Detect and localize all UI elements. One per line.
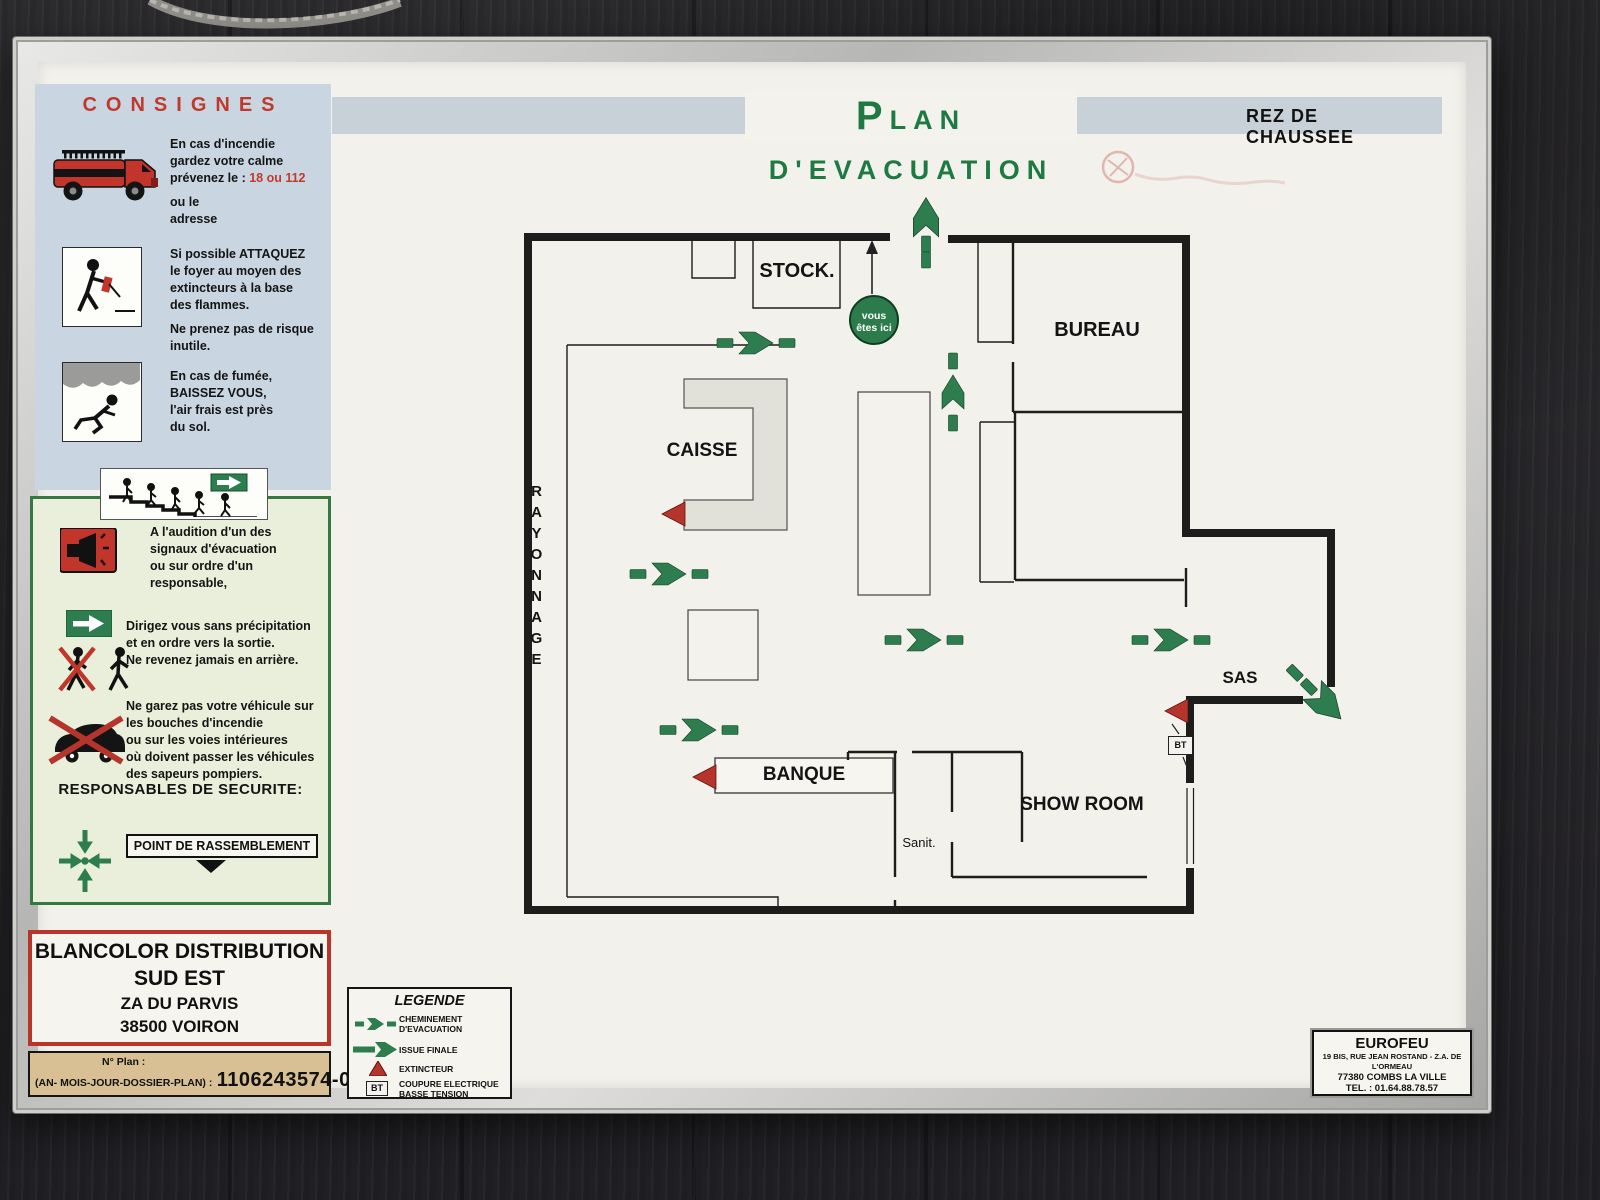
legend-box: LEGENDE CHEMINEMENT D'EVACUATION ISSUE F… — [347, 987, 512, 1099]
attack-instruction-text: Si possible ATTAQUEZ le foyer au moyen d… — [170, 246, 305, 314]
extinguisher-person-icon — [63, 248, 140, 325]
attack-instruction-text2: Ne prenez pas de risque inutile. — [170, 321, 314, 355]
extinguisher-pictogram — [62, 247, 142, 327]
evacuation-stairs-icon — [101, 469, 265, 517]
extinguisher-triangle-icon — [369, 1061, 387, 1076]
company-name-line1: BLANCOLOR DISTRIBUTION — [35, 938, 324, 965]
supplier-phone: TEL. : 01.64.88.78.57 — [1314, 1083, 1470, 1094]
final-exit-arrow — [1280, 658, 1350, 728]
supplier-box: EUROFEU 19 BIS, RUE JEAN ROSTAND - Z.A. … — [1312, 1030, 1472, 1096]
emergency-numbers: 18 ou 112 — [249, 171, 305, 185]
plan-number-label: N° Plan : — [102, 1056, 145, 1068]
smoke-crouch-icon — [63, 363, 140, 440]
solid-exit-arrow-icon — [353, 1042, 399, 1057]
bt-plan-marker: BT — [1168, 736, 1193, 755]
dashed-route-arrow-icon — [355, 1017, 397, 1031]
company-address-line2: 38500 VOIRON — [120, 1015, 239, 1038]
page-title: PLAN D'EVACUATION — [745, 91, 1077, 195]
plan-number-box: N° Plan : (AN- MOIS-JOUR-DOSSIER-PLAN) :… — [28, 1051, 331, 1097]
room-label-banque: BANQUE — [717, 764, 891, 786]
signal-instruction-text: A l'audition d'un des signaux d'évacuati… — [150, 524, 277, 592]
floor-plan — [505, 183, 1350, 945]
vehicle-instruction-text: Ne garez pas votre véhicule sur les bouc… — [126, 698, 314, 783]
rally-point-label: POINT DE RASSEMBLEMENT — [126, 834, 318, 858]
exit-instruction-text: Dirigez vous sans précipitation et en or… — [126, 618, 311, 669]
assembly-point-icon — [56, 826, 114, 896]
fire-call-line: prévenez le : 18 ou 112 — [170, 170, 306, 187]
fire-call-prefix: prévenez le : — [170, 171, 249, 185]
bt-box-icon: BT — [366, 1081, 388, 1096]
smoke-instruction-text: En cas de fumée, BAISSEZ VOUS, l'air fra… — [170, 368, 273, 436]
room-label-sas: SAS — [1214, 668, 1266, 688]
company-address-line1: ZA DU PARVIS — [121, 992, 239, 1015]
legend-label-cheminement: CHEMINEMENT D'EVACUATION — [399, 1015, 462, 1034]
rope-on-table — [120, 0, 420, 40]
legend-label-extincteur: EXTINCTEUR — [399, 1065, 453, 1075]
room-label-caisse: CAISSE — [658, 440, 746, 462]
photo-background: PLAN D'EVACUATION REZ DE CHAUSSEE CONSIG… — [0, 0, 1600, 1200]
legend-title: LEGENDE — [349, 993, 510, 1009]
company-box: BLANCOLOR DISTRIBUTION SUD EST ZA DU PAR… — [28, 930, 331, 1046]
fire-truck-icon — [48, 138, 166, 218]
room-label-stock: STOCK. — [743, 260, 851, 283]
rally-point-arrow-icon — [196, 860, 226, 873]
smoke-pictogram — [62, 362, 142, 442]
company-name-line2: SUD EST — [134, 965, 225, 992]
title-box: PLAN D'EVACUATION — [745, 91, 1077, 141]
supplier-city: 77380 COMBS LA VILLE — [1314, 1072, 1470, 1083]
exit-sign-icon — [66, 610, 112, 637]
supplier-address: 19 BIS, RUE JEAN ROSTAND - Z.A. DE L'ORM… — [1314, 1052, 1470, 1072]
room-label-showroom: SHOW ROOM — [1018, 794, 1146, 816]
fire-instruction-text2: ou le adresse — [170, 194, 217, 228]
alarm-icon — [60, 528, 118, 574]
room-label-rayonnage: RAYONNAGE — [528, 483, 545, 655]
room-label-sanit: Sanit. — [894, 835, 944, 850]
responsables-heading: RESPONSABLES DE SECURITE: — [30, 781, 331, 798]
supplier-name: EUROFEU — [1314, 1035, 1470, 1052]
you-are-here-badge: vous êtes ici — [849, 295, 899, 345]
legend-label-issue: ISSUE FINALE — [399, 1046, 458, 1056]
stairs-pictogram — [100, 468, 268, 520]
room-label-bureau: BUREAU — [1038, 319, 1156, 342]
no-parking-icon — [46, 712, 126, 766]
fire-instruction-text: En cas d'incendie gardez votre calme — [170, 136, 283, 170]
consignes-title: CONSIGNES — [35, 94, 331, 117]
you-are-here-pointer — [866, 240, 878, 294]
legend-label-coupure: COUPURE ELECTRIQUE BASSE TENSION — [399, 1080, 499, 1099]
plan-number-value: 1106243574-02 — [217, 1069, 363, 1091]
plan-number-format: (AN- MOIS-JOUR-DOSSIER-PLAN) : — [35, 1077, 212, 1089]
